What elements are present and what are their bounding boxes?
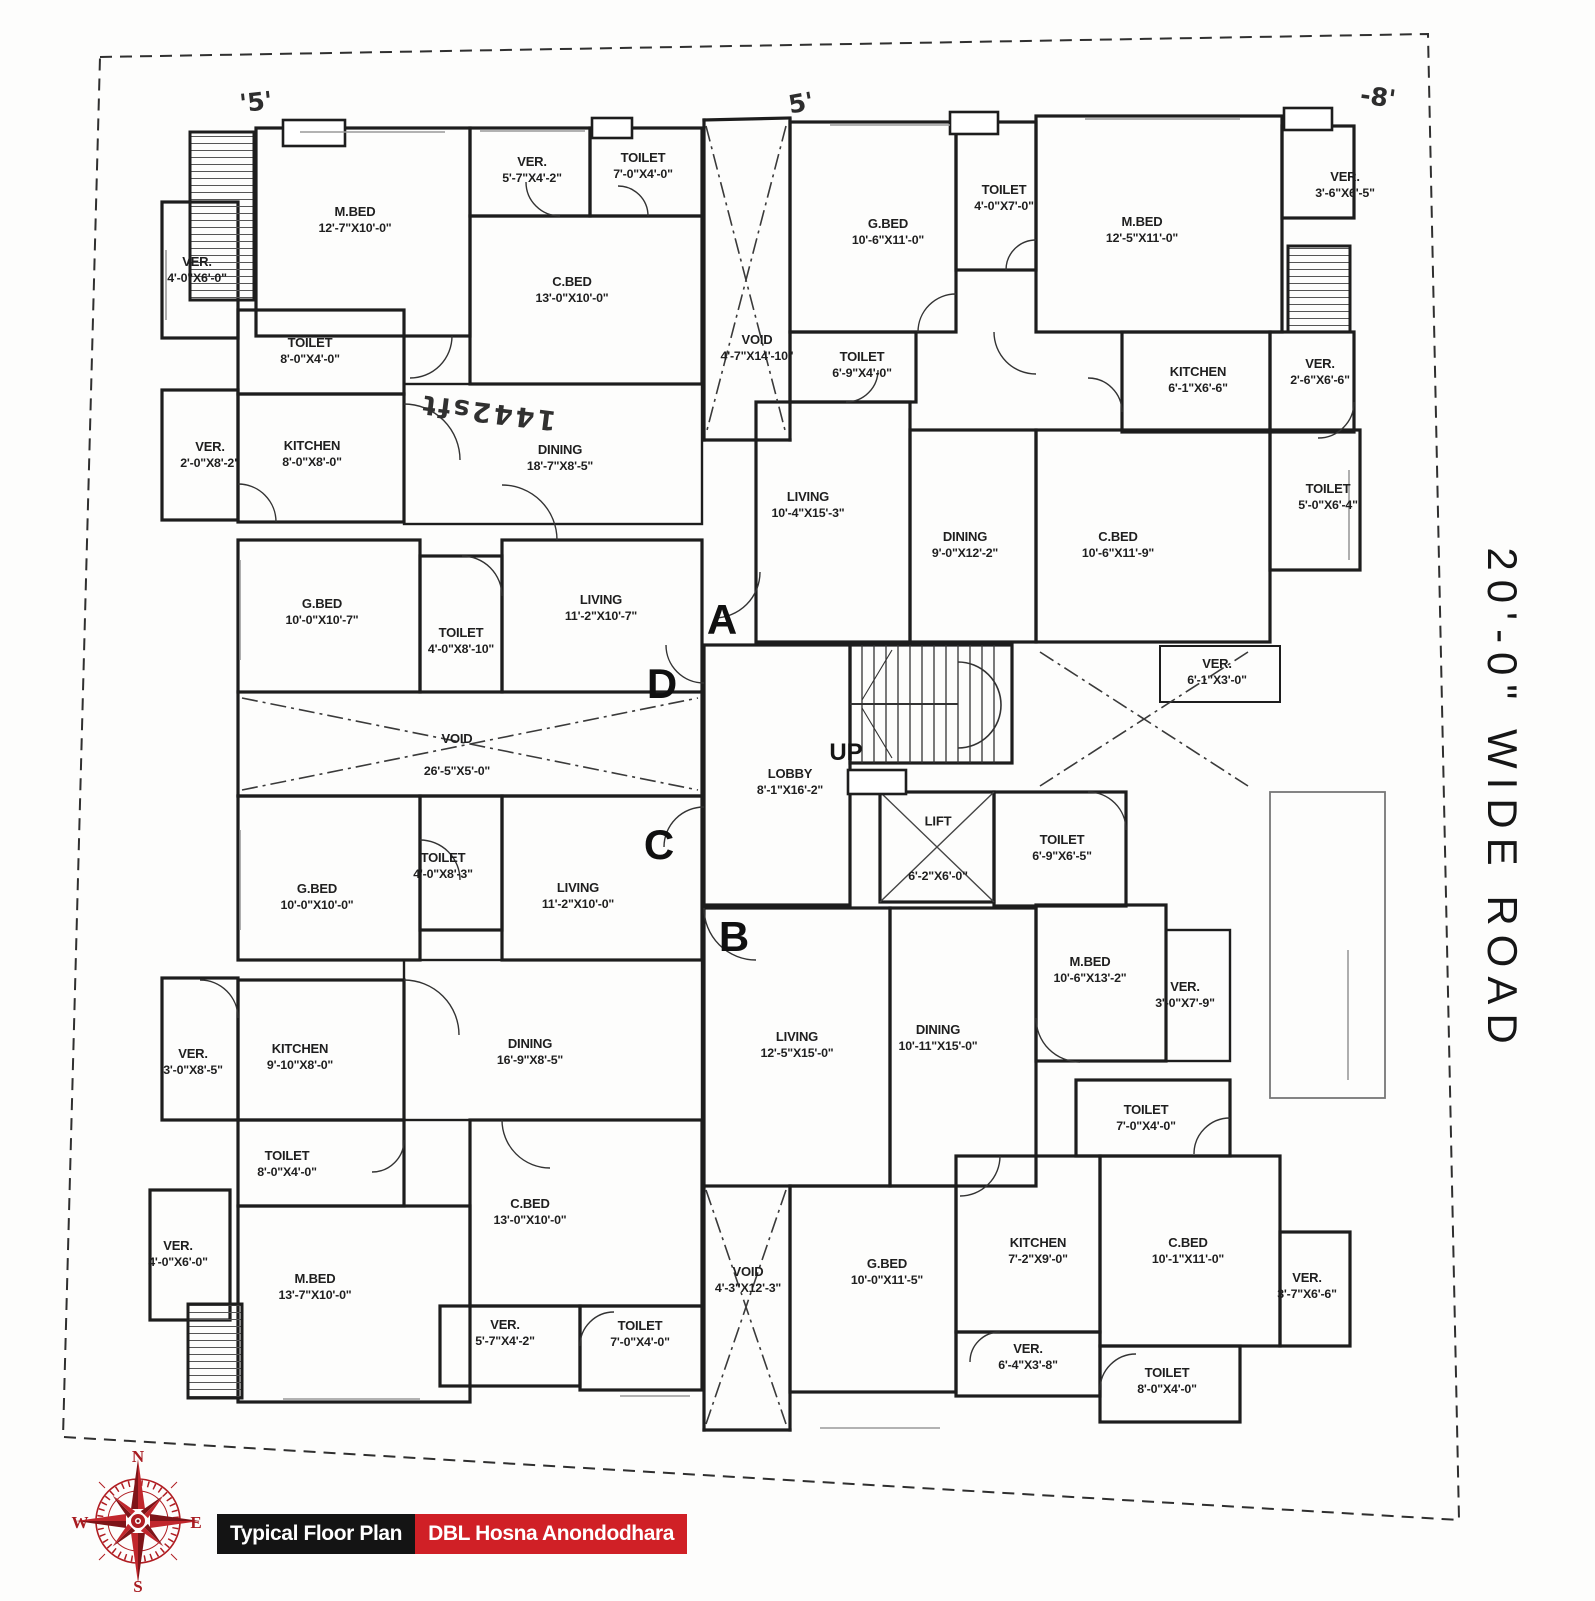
room-label: C.BED10'-1"X11'-0"	[1152, 1235, 1224, 1268]
floorplan-linework	[0, 0, 1595, 1601]
void-cross-lines	[242, 126, 1248, 1424]
floor-plan-page: M.BED12'-7"X10'-0" VER.5'-7"X4'-2" TOILE…	[0, 0, 1595, 1601]
room-label: G.BED10'-6"X11'-0"	[852, 216, 924, 249]
room-label: TOILET4'-0"X8'-3"	[413, 850, 473, 883]
handwritten-note: '5'	[238, 86, 274, 118]
room-label: LIVING10'-4"X15'-3"	[772, 489, 845, 522]
project-name-label: DBL Hosna Anondodhara	[415, 1514, 687, 1554]
room-label: KITCHEN6'-1"X6'-6"	[1168, 364, 1228, 397]
room-label: TOILET7'-0"X4'-0"	[610, 1318, 670, 1351]
room-label: M.BED13'-7"X10'-0"	[279, 1271, 352, 1304]
compass-east-label: E	[190, 1513, 201, 1533]
compass-north-label: N	[132, 1447, 144, 1467]
room-label: DINING18'-7"X8'-5"	[527, 442, 593, 475]
room-label: M.BED10'-6"X13'-2"	[1054, 954, 1127, 987]
room-label: KITCHEN9'-10"X8'-0"	[267, 1041, 333, 1074]
unit-entry-letter-a: A	[707, 596, 737, 644]
compass-rose-icon	[76, 1459, 200, 1583]
room-label: G.BED10'-0"X10'-0"	[281, 881, 354, 914]
room-label: LIVING11'-2"X10'-0"	[542, 880, 614, 913]
room-label: TOILET7'-0"X4'-0"	[613, 150, 673, 183]
room-label: DINING10'-11"X15'-0"	[899, 1022, 978, 1055]
room-label: DINING16'-9"X8'-5"	[497, 1036, 563, 1069]
room-label: M.BED12'-5"X11'-0"	[1106, 214, 1178, 247]
room-label: LIFT	[925, 814, 952, 831]
room-label: G.BED10'-0"X10'-7"	[286, 596, 359, 629]
room-label: VER.5'-7"X4'-2"	[502, 154, 562, 187]
room-label: VER.6'-4"X3'-8"	[998, 1341, 1058, 1374]
room-label: TOILET4'-0"X8'-10"	[428, 625, 494, 658]
room-label: VER.4'-0"X6'-0"	[148, 1238, 208, 1271]
room-label: C.BED10'-6"X11'-9"	[1082, 529, 1154, 562]
room-label: VER.3'-0"X7'-9"	[1155, 979, 1215, 1012]
lift-cross	[880, 792, 994, 902]
room-label: VOID26'-5"X5'-0"	[424, 731, 490, 780]
room-label: C.BED13'-0"X10'-0"	[536, 274, 609, 307]
room-label: VER.2'-0"X8'-2"	[180, 439, 240, 472]
room-label: TOILET8'-0"X4'-0"	[280, 335, 340, 368]
compass-south-label: S	[133, 1577, 142, 1597]
room-label: TOILET8'-0"X4'-0"	[1137, 1365, 1197, 1398]
unit-entry-letter-d: D	[647, 660, 677, 708]
unit-entry-letter-b: B	[719, 913, 749, 961]
room-label: VER.3'-6"X6'-5"	[1315, 169, 1375, 202]
road-label: 20'-0" WIDE ROAD	[1478, 547, 1526, 1052]
stairs-up-label: UP	[829, 739, 862, 767]
room-label: TOILET8'-0"X4'-0"	[257, 1148, 317, 1181]
room-label: VER.3'-0"X8'-5"	[163, 1046, 223, 1079]
room-label: DINING9'-0"X12'-2"	[932, 529, 998, 562]
title-bar: Typical Floor Plan DBL Hosna Anondodhara	[217, 1514, 687, 1554]
room-label: LOBBY8'-1"X16'-2"	[757, 766, 823, 799]
room-label: 6'-2"X6'-0"	[908, 869, 968, 885]
room-label: TOILET5'-0"X6'-4"	[1298, 481, 1358, 514]
room-label: VER.5'-7"X4'-2"	[475, 1317, 535, 1350]
room-label: TOILET7'-0"X4'-0"	[1116, 1102, 1176, 1135]
room-label: VOID4'-7"X14'-10"	[721, 332, 794, 365]
room-label: VER.4'-0"X6'-0"	[167, 254, 227, 287]
room-label: LIVING11'-2"X10'-7"	[565, 592, 637, 625]
room-label: TOILET6'-9"X4'-0"	[832, 349, 892, 382]
handwritten-note: 5'	[786, 87, 816, 120]
room-label: VER.2'-6"X6'-6"	[1290, 356, 1350, 389]
room-label: TOILET4'-0"X7'-0"	[974, 182, 1034, 215]
compass-west-label: W	[72, 1513, 89, 1533]
plan-type-label: Typical Floor Plan	[217, 1514, 415, 1554]
room-label: LIVING12'-5"X15'-0"	[761, 1029, 834, 1062]
room-label: VOID4'-3"X12'-3"	[715, 1264, 781, 1297]
room-label: KITCHEN8'-0"X8'-0"	[282, 438, 342, 471]
handwritten-note: -8'	[1358, 80, 1397, 114]
unit-entry-letter-c: C	[644, 821, 674, 869]
room-label: VER.3'-7"X6'-6"	[1277, 1270, 1337, 1303]
room-label: M.BED12'-7"X10'-0"	[319, 204, 392, 237]
room-label: VER.6'-1"X3'-0"	[1187, 656, 1247, 689]
room-label: C.BED13'-0"X10'-0"	[494, 1196, 567, 1229]
room-label: G.BED10'-0"X11'-5"	[851, 1256, 923, 1289]
room-label: TOILET6'-9"X6'-5"	[1032, 832, 1092, 865]
room-label: KITCHEN7'-2"X9'-0"	[1008, 1235, 1068, 1268]
